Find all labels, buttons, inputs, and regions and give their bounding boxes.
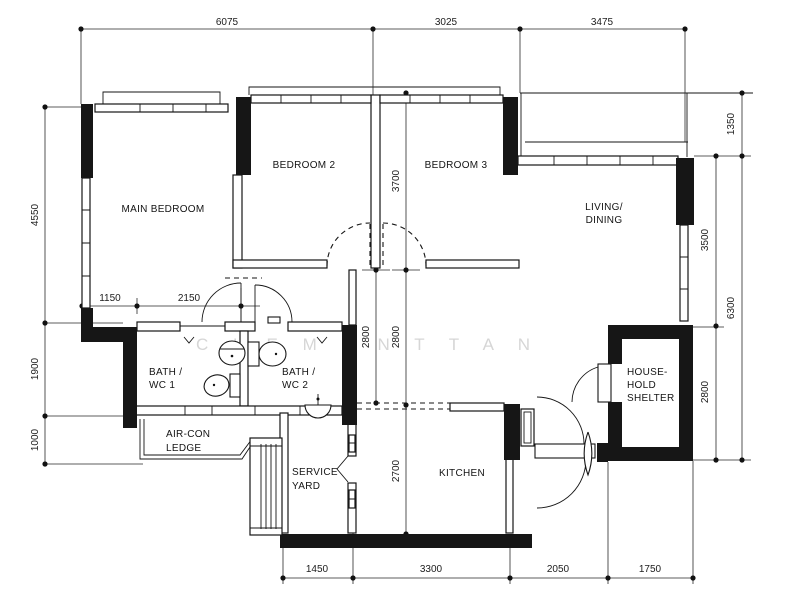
drying-rack (250, 438, 282, 535)
dim-bottom-1: 1450 (306, 564, 329, 575)
dim-right-2800: 2800 (700, 380, 711, 403)
shelter-door-swing (572, 367, 598, 402)
wall-sw-corner (81, 327, 137, 342)
window-living-north (518, 156, 678, 165)
wall-bed3-south (426, 260, 519, 268)
wall-mainbed-bed2 (233, 175, 242, 268)
dim-inner-3700: 3700 (391, 169, 402, 192)
label-bath2-1: BATH / (282, 367, 315, 378)
main-bedroom-ledge (103, 92, 220, 104)
dim-top-3: 3475 (591, 17, 614, 28)
shelter-wall-right (679, 325, 693, 461)
wall-bath-north-b (225, 322, 255, 331)
column-mainbed-bed2 (236, 97, 251, 175)
dim-inner-2800b: 2800 (391, 325, 402, 348)
wall-hall-west (349, 270, 356, 325)
label-bath1-2: WC 1 (149, 380, 175, 391)
dim-left-1: 4550 (30, 203, 41, 226)
wall-kitchen-north (450, 403, 504, 411)
dim-left-2: 1900 (30, 357, 41, 380)
label-bedroom3: BEDROOM 3 (425, 160, 488, 171)
window-mainbed-west (82, 178, 90, 308)
floor-plan-page: C L E M E N T T A N (0, 0, 788, 600)
dim-bottom-3: 2050 (547, 564, 570, 575)
label-shelter-2: HOLD (627, 380, 656, 391)
window-living-east (680, 225, 688, 321)
label-kitchen: KITCHEN (439, 468, 485, 479)
wall-bed2-bed3 (371, 95, 380, 268)
door-bedroom3 (383, 223, 426, 266)
column-kitchen-east (504, 404, 520, 460)
toilet-icon-bath2 (248, 342, 286, 366)
label-bedroom2: BEDROOM 2 (273, 160, 336, 171)
dim-left-3: 1000 (30, 428, 41, 451)
serviceyard-window-chevron (337, 456, 348, 482)
dim-inner-2150: 2150 (178, 293, 201, 304)
column-bed3-living (503, 97, 518, 175)
wall-bath2-hall (342, 325, 357, 425)
label-shelter-3: SHELTER (627, 393, 674, 404)
kitchen-open-boundary (357, 403, 450, 409)
label-service-2: YARD (292, 481, 320, 492)
door-main-bedroom (202, 278, 262, 322)
label-shelter-1: HOUSE- (627, 367, 668, 378)
wall-bed2-south (233, 260, 327, 268)
dim-top-1: 6075 (216, 17, 239, 28)
dim-right-6300: 6300 (726, 296, 737, 319)
db-box-icon (521, 409, 534, 446)
wall-kitchen-east-lower (506, 458, 513, 533)
door-bath2 (255, 285, 292, 323)
label-bath1-1: BATH / (149, 367, 182, 378)
wall-bottom (280, 534, 532, 548)
dim-inner-2800a: 2800 (361, 325, 372, 348)
toilet-icon-bath1 (202, 372, 240, 398)
window-bed3-north (380, 95, 503, 103)
door-main-entrance (535, 397, 595, 508)
label-aircon-2: LEDGE (166, 443, 201, 454)
living-ledge-inner (525, 142, 688, 157)
bedroom-ledge (249, 87, 500, 95)
shelter-wall-left-upper (608, 325, 622, 364)
label-main-bedroom: MAIN BEDROOM (121, 204, 204, 215)
dim-bottom-4: 1750 (639, 564, 662, 575)
dim-right-1350: 1350 (726, 112, 737, 135)
window-bed2-north (251, 95, 371, 103)
dim-inner-2700: 2700 (391, 459, 402, 482)
label-living-2: DINING (586, 215, 623, 226)
floor-plan-drawing: C L E M E N T T A N (0, 0, 788, 600)
window-mainbed-north (95, 104, 228, 112)
column-living-east (676, 158, 694, 225)
dim-inner-1150: 1150 (99, 293, 121, 304)
window-serviceyard-slits (349, 435, 355, 508)
shelter-door-leaf (598, 364, 611, 402)
dim-top-2: 3025 (435, 17, 458, 28)
wall-bath1-west (123, 342, 137, 428)
washbasin-icon-bath2 (305, 394, 331, 418)
label-bath2-2: WC 2 (282, 380, 308, 391)
washbasin-icon-bath1 (219, 341, 245, 365)
wall-bath-north-c (288, 322, 342, 331)
label-service-1: SERVICE (292, 467, 338, 478)
door-bedroom2 (327, 223, 370, 266)
door-bath1 (180, 322, 225, 331)
label-aircon-1: AIR-CON (166, 429, 210, 440)
wall-bath-north-a (137, 322, 180, 331)
column-mainbed-nw (81, 104, 93, 178)
wall-bath-middle (240, 331, 248, 406)
label-living-1: LIVING/ (585, 202, 623, 213)
dim-right-3500: 3500 (700, 228, 711, 251)
dim-bottom-2: 3300 (420, 564, 443, 575)
jamb-entrance-right (597, 443, 608, 462)
shelter-wall-left-lower (608, 402, 622, 452)
